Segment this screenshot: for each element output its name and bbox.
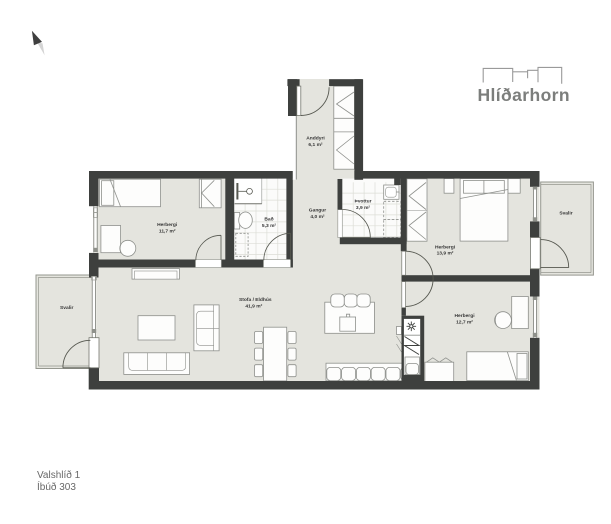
svg-text:12,7 m²: 12,7 m² bbox=[456, 319, 473, 325]
svg-text:Bað: Bað bbox=[264, 215, 273, 222]
svg-text:13,9 m²: 13,9 m² bbox=[437, 250, 454, 256]
svg-text:Anddyri: Anddyri bbox=[306, 136, 325, 142]
svg-text:5,3 m²: 5,3 m² bbox=[262, 223, 277, 229]
svg-text:Svalir: Svalir bbox=[60, 305, 73, 311]
svg-text:Valshlíð 1: Valshlíð 1 bbox=[37, 469, 81, 481]
svg-text:4,0 m²: 4,0 m² bbox=[310, 214, 325, 220]
svg-text:6,1 m²: 6,1 m² bbox=[308, 142, 323, 148]
svg-text:Herbergi: Herbergi bbox=[435, 244, 456, 250]
svg-text:Gangur: Gangur bbox=[309, 208, 326, 214]
svg-text:41,9 m²: 41,9 m² bbox=[245, 303, 262, 309]
svg-text:3,9 m²: 3,9 m² bbox=[356, 205, 371, 211]
svg-text:11,7 m²: 11,7 m² bbox=[159, 229, 176, 235]
svg-text:Íbúð 303: Íbúð 303 bbox=[37, 480, 76, 493]
svg-text:Hlíðarhorn: Hlíðarhorn bbox=[478, 85, 570, 105]
svg-text:Þvottur: Þvottur bbox=[354, 199, 371, 205]
svg-text:Svalir: Svalir bbox=[559, 210, 572, 216]
svg-text:Herbergi: Herbergi bbox=[157, 222, 178, 228]
svg-text:Herbergi: Herbergi bbox=[454, 313, 475, 319]
svg-text:Stofa / Eldhús: Stofa / Eldhús bbox=[239, 297, 272, 303]
